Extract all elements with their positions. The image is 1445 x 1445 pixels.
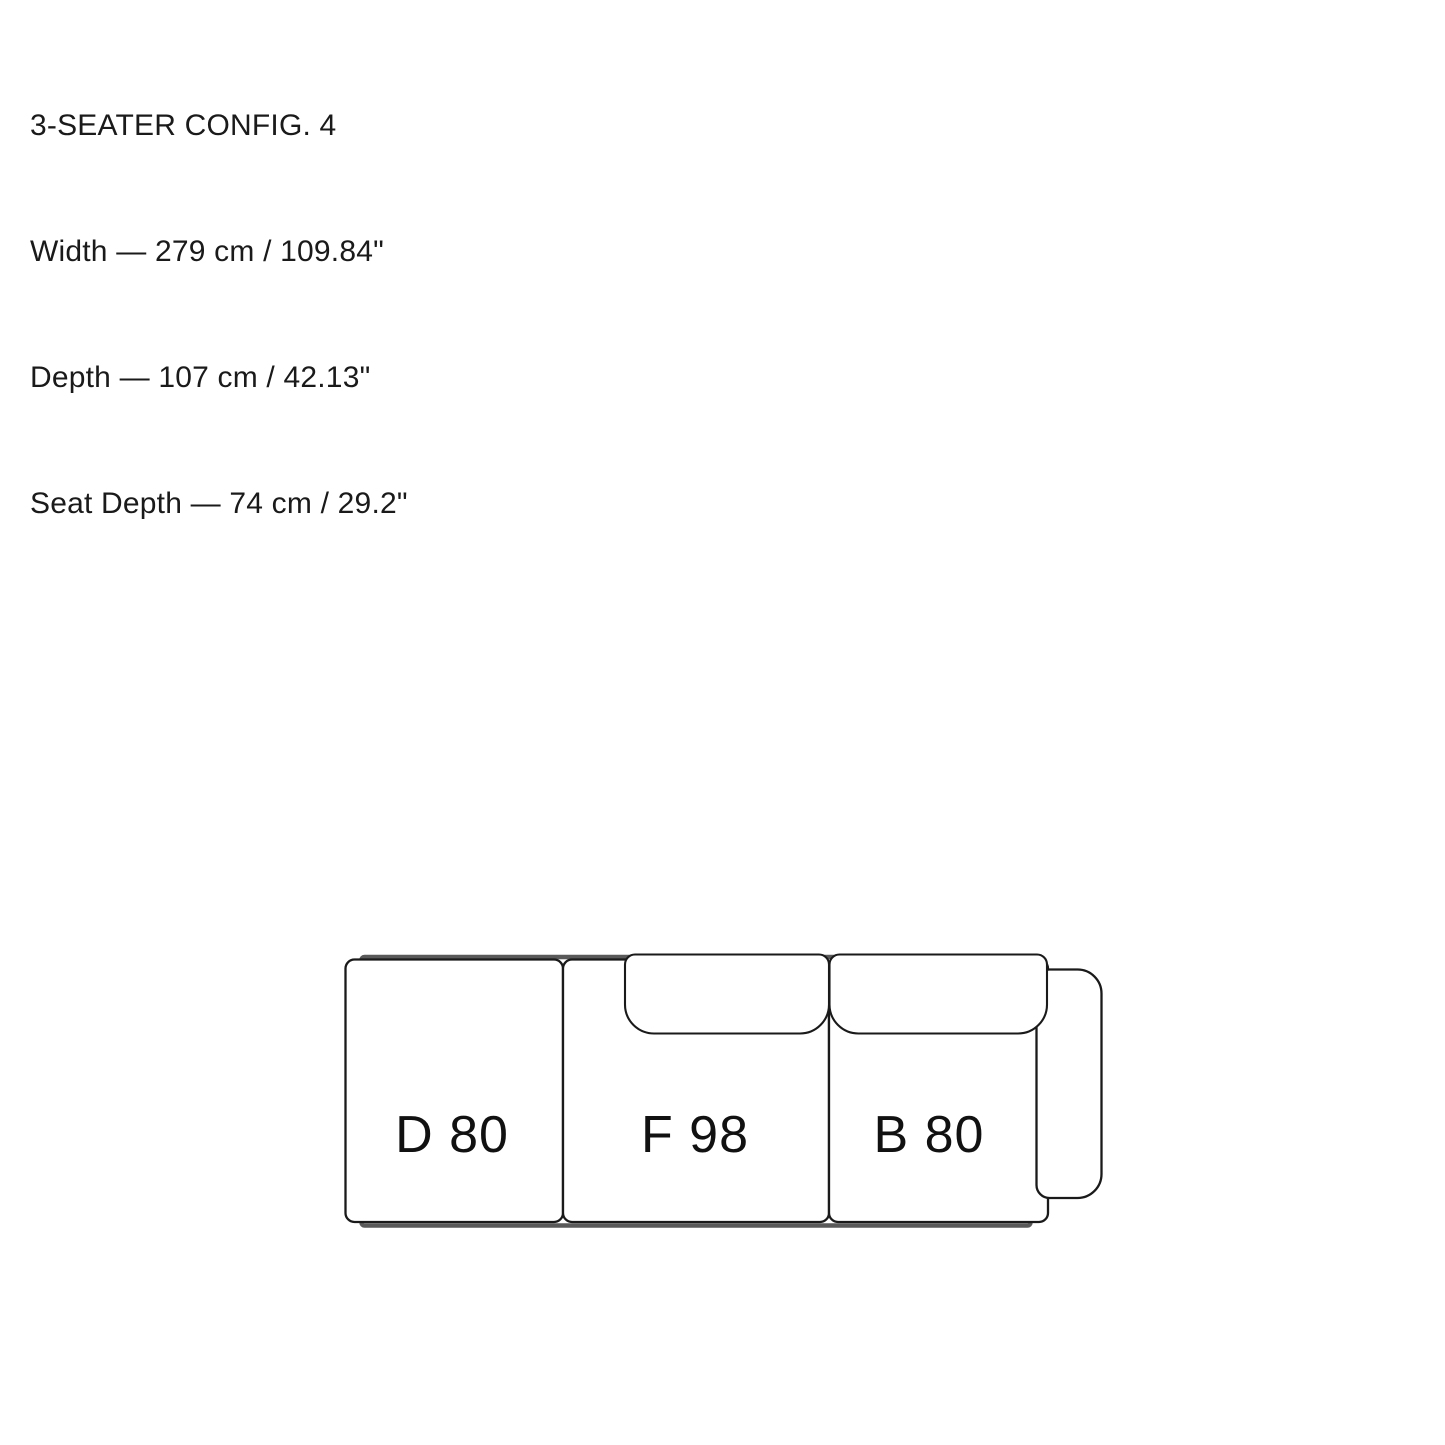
- module-label-d80: D 80: [395, 1106, 509, 1164]
- module-label-f98: F 98: [641, 1106, 749, 1164]
- sofa-diagram: D 80 F 98 B 80: [0, 0, 1445, 1445]
- back-cushion-f98: [625, 955, 829, 1034]
- module-label-b80: B 80: [874, 1106, 985, 1164]
- back-cushion-b80: [830, 955, 1048, 1034]
- module-d80: [346, 960, 564, 1223]
